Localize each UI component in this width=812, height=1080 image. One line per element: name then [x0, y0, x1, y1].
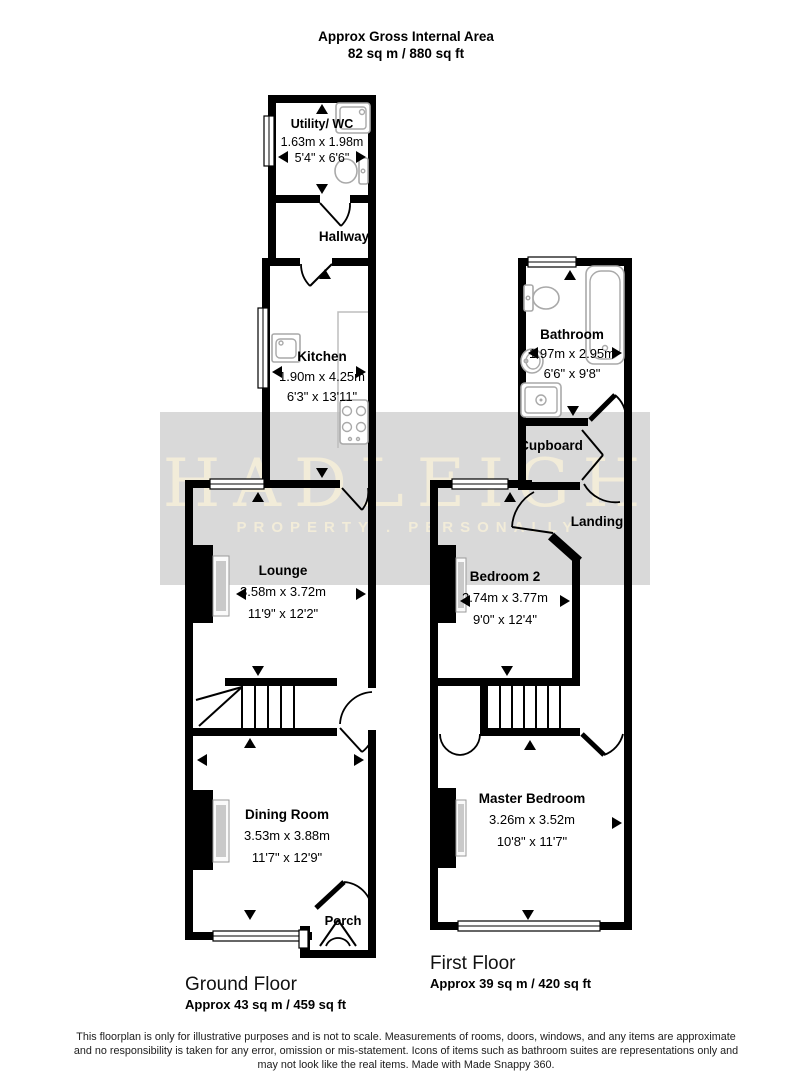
window — [452, 479, 508, 489]
room-metric: 1.97m x 2.95m — [529, 346, 615, 361]
room-metric: 1.63m x 1.98m — [281, 135, 364, 149]
window — [264, 116, 274, 166]
window — [258, 308, 268, 388]
kitchen-hob-icon — [340, 400, 368, 444]
room-porch-label: Porch — [325, 913, 362, 928]
dining-chimney-breast — [193, 790, 213, 870]
ground-floor-title: Ground Floor — [185, 974, 298, 995]
room-imperial: 11'7" x 12'9" — [252, 850, 323, 865]
header-line1: Approx Gross Internal Area — [318, 29, 494, 44]
room-label: Utility/ WC — [291, 117, 354, 131]
room-imperial: 10'8" x 11'7" — [497, 834, 568, 849]
window — [299, 930, 308, 948]
room-imperial: 5'4" x 6'6" — [295, 151, 350, 165]
shower-icon — [521, 383, 561, 417]
window — [210, 479, 264, 489]
room-landing-label: Landing — [571, 514, 624, 529]
lounge-fireplace — [213, 556, 229, 616]
kitchen-sink-icon — [272, 334, 300, 362]
room-metric: 2.74m x 3.77m — [462, 590, 548, 605]
window — [458, 921, 600, 931]
first-floor-title: First Floor — [430, 953, 516, 974]
lounge-chimney-breast — [193, 545, 213, 623]
floorplan-page: Approx Gross Internal Area 82 sq m / 880… — [0, 0, 812, 1080]
room-imperial: 6'6" x 9'8" — [544, 366, 601, 381]
room-metric: 3.26m x 3.52m — [489, 812, 575, 827]
bedroom2-chimney-breast — [438, 545, 456, 623]
header-line2: 82 sq m / 880 sq ft — [348, 46, 465, 61]
window — [528, 257, 576, 267]
room-imperial: 9'0" x 12'4" — [473, 612, 537, 627]
window — [213, 931, 305, 941]
room-label: Master Bedroom — [479, 791, 586, 806]
disclaimer-line1: This floorplan is only for illustrative … — [76, 1031, 736, 1043]
room-label: Lounge — [259, 563, 308, 578]
room-metric: 1.90m x 4.25m — [279, 369, 365, 384]
room-label: Dining Room — [245, 807, 329, 822]
bathroom-toilet-icon — [524, 285, 559, 311]
first-floor-area: Approx 39 sq m / 420 sq ft — [430, 976, 592, 991]
room-cupboard-label: Cupboard — [519, 438, 583, 453]
room-label: Kitchen — [297, 349, 347, 364]
dining-fireplace — [213, 800, 229, 862]
floorplan-svg: Approx Gross Internal Area 82 sq m / 880… — [0, 0, 812, 1080]
room-dining: Dining Room 3.53m x 3.88m 11'7" x 12'9" — [244, 807, 330, 865]
room-hallway-label: Hallway — [319, 229, 370, 244]
master-chimney-breast — [438, 788, 456, 868]
disclaimer-line2: and no responsibility is taken for any e… — [74, 1045, 738, 1057]
watermark-subtitle: PROPERTY . PERSONALLY — [237, 519, 580, 536]
disclaimer-line3: may not look like the real items. Made w… — [257, 1059, 554, 1071]
room-bedroom2: Bedroom 2 2.74m x 3.77m 9'0" x 12'4" — [462, 569, 548, 627]
room-label: Bathroom — [540, 327, 604, 342]
master-fireplace — [456, 800, 466, 856]
room-metric: 3.53m x 3.88m — [244, 828, 330, 843]
room-metric: 3.58m x 3.72m — [240, 584, 326, 599]
room-label: Bedroom 2 — [470, 569, 541, 584]
room-imperial: 11'9" x 12'2" — [248, 606, 319, 621]
room-imperial: 6'3" x 13'11" — [287, 389, 358, 404]
ground-floor-area: Approx 43 sq m / 459 sq ft — [185, 997, 347, 1012]
